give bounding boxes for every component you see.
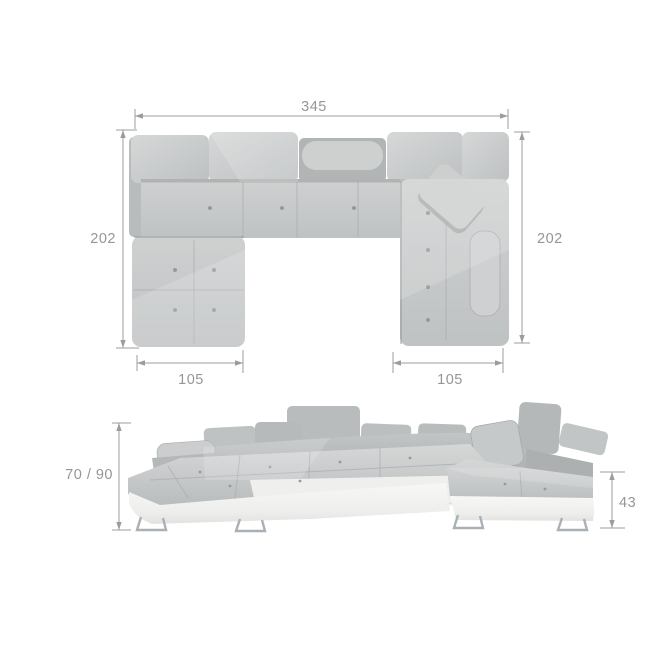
sofa-dimensions-svg: 345 202 202 105 105 [0, 0, 650, 650]
top-headrest-roll-pillow [302, 141, 383, 170]
total-width-label: 345 [301, 99, 327, 115]
arrow-down-icon [120, 340, 125, 348]
arrow-up-icon [120, 130, 125, 138]
dimension-seat-backrest-height: 70 / 90 [65, 423, 131, 530]
front-right-base [450, 496, 594, 521]
dimension-base-height: 43 [600, 472, 636, 528]
right-chaise-width-label: 105 [437, 372, 463, 388]
dimension-right-depth: 202 [514, 132, 563, 343]
arrow-left-icon [135, 113, 143, 118]
top-back-cushion-corner-right [462, 132, 509, 182]
arrow-down-icon [116, 522, 121, 530]
base-height-label: 43 [619, 495, 636, 511]
dimension-right-chaise-width: 105 [393, 348, 503, 388]
left-depth-label: 202 [90, 231, 116, 247]
sofa-front-view [128, 402, 609, 531]
dimension-left-chaise-width: 105 [137, 350, 243, 388]
product-dimensions-image: 345 202 202 105 105 [0, 0, 650, 650]
left-chaise-width-label: 105 [178, 372, 204, 388]
arrow-left-icon [137, 360, 145, 365]
top-back-cushion-corner-left [131, 135, 209, 183]
arrow-left-icon [393, 360, 401, 365]
arrow-right-icon [235, 360, 243, 365]
seat-backrest-height-label: 70 / 90 [65, 467, 113, 483]
front-corner-headrest [516, 402, 561, 455]
dimension-total-width: 345 [135, 99, 508, 129]
front-right-side-headrest [558, 422, 609, 456]
arrow-up-icon [116, 423, 121, 431]
right-depth-label: 202 [537, 231, 563, 247]
arrow-down-icon [519, 335, 524, 343]
arrow-down-icon [609, 520, 614, 528]
arrow-up-icon [519, 132, 524, 140]
arrow-up-icon [609, 472, 614, 480]
sofa-top-view [129, 132, 509, 347]
arrow-right-icon [495, 360, 503, 365]
top-seat-band [141, 179, 404, 238]
arrow-right-icon [500, 113, 508, 118]
